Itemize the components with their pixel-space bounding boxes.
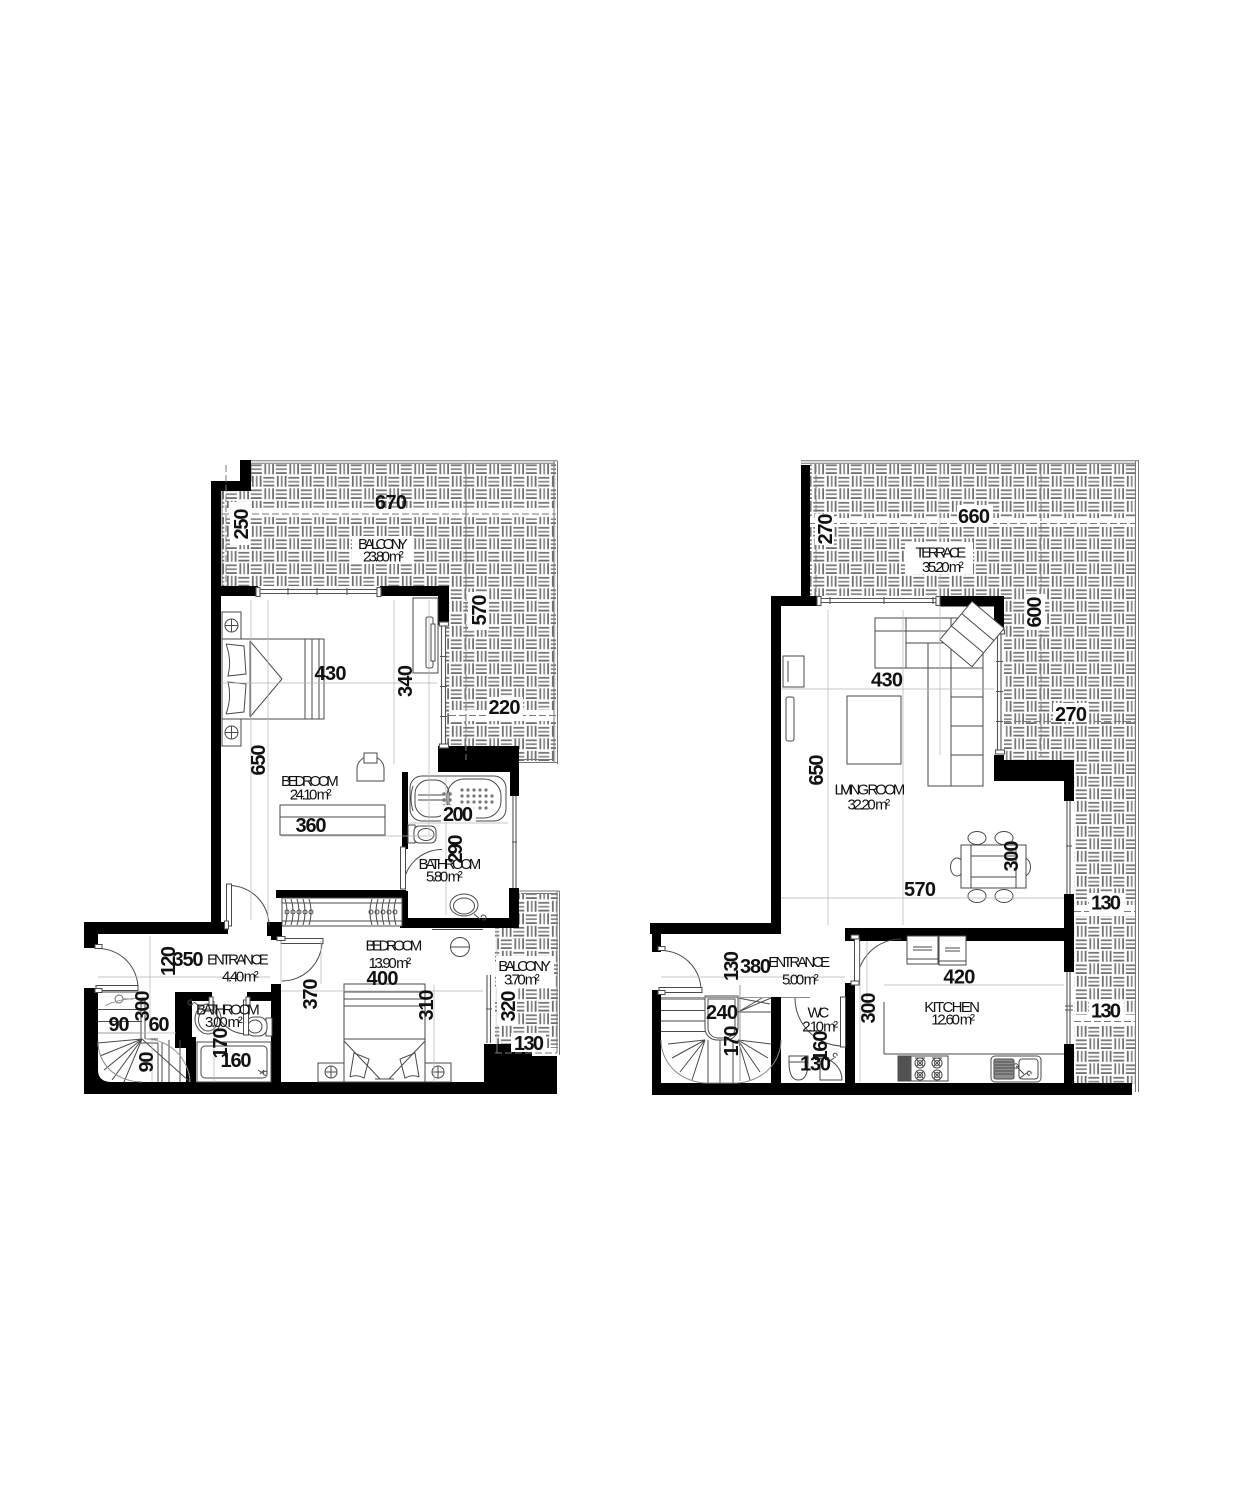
svg-text:90: 90	[109, 1014, 130, 1036]
svg-text:130: 130	[800, 1054, 831, 1076]
svg-text:360: 360	[296, 815, 327, 837]
svg-text:300: 300	[1001, 841, 1023, 872]
svg-text:340: 340	[395, 665, 417, 697]
svg-text:24.10 m²: 24.10 m²	[290, 787, 332, 804]
svg-text:ENTRANCE: ENTRANCE	[207, 952, 269, 969]
svg-text:130: 130	[1091, 893, 1121, 915]
svg-text:660: 660	[958, 506, 990, 528]
svg-text:250: 250	[231, 509, 253, 540]
svg-text:BEDROOM: BEDROOM	[366, 938, 423, 955]
svg-text:170: 170	[721, 1026, 743, 1057]
svg-text:570: 570	[904, 879, 936, 901]
svg-text:130: 130	[514, 1033, 544, 1055]
svg-text:2.10 m²: 2.10 m²	[802, 1019, 838, 1036]
svg-text:3.00 m²: 3.00 m²	[205, 1014, 243, 1031]
svg-text:5.00 m²: 5.00 m²	[782, 972, 819, 989]
svg-text:650: 650	[248, 745, 270, 776]
svg-text:420: 420	[943, 967, 975, 989]
svg-text:23.80 m²: 23.80 m²	[363, 549, 404, 566]
svg-text:220: 220	[489, 697, 521, 719]
svg-text:13.90 m²: 13.90 m²	[369, 955, 412, 972]
svg-text:430: 430	[315, 663, 347, 685]
svg-text:430: 430	[871, 670, 903, 692]
svg-text:200: 200	[443, 804, 473, 826]
svg-text:350: 350	[173, 949, 204, 971]
svg-text:240: 240	[706, 1002, 738, 1024]
svg-text:5.80 m²: 5.80 m²	[426, 869, 463, 886]
svg-text:600: 600	[1024, 597, 1046, 628]
svg-text:35.20 m²: 35.20 m²	[922, 559, 964, 576]
svg-text:270: 270	[1055, 704, 1087, 726]
svg-text:320: 320	[498, 991, 520, 1022]
svg-text:ENTRANCE: ENTRANCE	[768, 954, 830, 971]
svg-text:370: 370	[300, 979, 322, 1010]
svg-text:32.20 m²: 32.20 m²	[848, 797, 891, 814]
svg-text:310: 310	[416, 990, 438, 1021]
svg-text:570: 570	[469, 595, 491, 626]
svg-text:60: 60	[149, 1014, 170, 1036]
svg-text:90: 90	[136, 1052, 158, 1073]
svg-text:670: 670	[375, 492, 407, 514]
svg-text:12.60 m²: 12.60 m²	[931, 1012, 975, 1029]
svg-text:270: 270	[815, 514, 837, 545]
svg-text:130: 130	[1091, 1001, 1121, 1023]
svg-text:300: 300	[858, 993, 880, 1024]
svg-text:3.70 m²: 3.70 m²	[504, 972, 540, 989]
svg-text:160: 160	[221, 1050, 252, 1072]
svg-text:650: 650	[806, 755, 828, 786]
svg-text:380: 380	[740, 956, 771, 978]
svg-text:4.40 m²: 4.40 m²	[222, 969, 259, 986]
